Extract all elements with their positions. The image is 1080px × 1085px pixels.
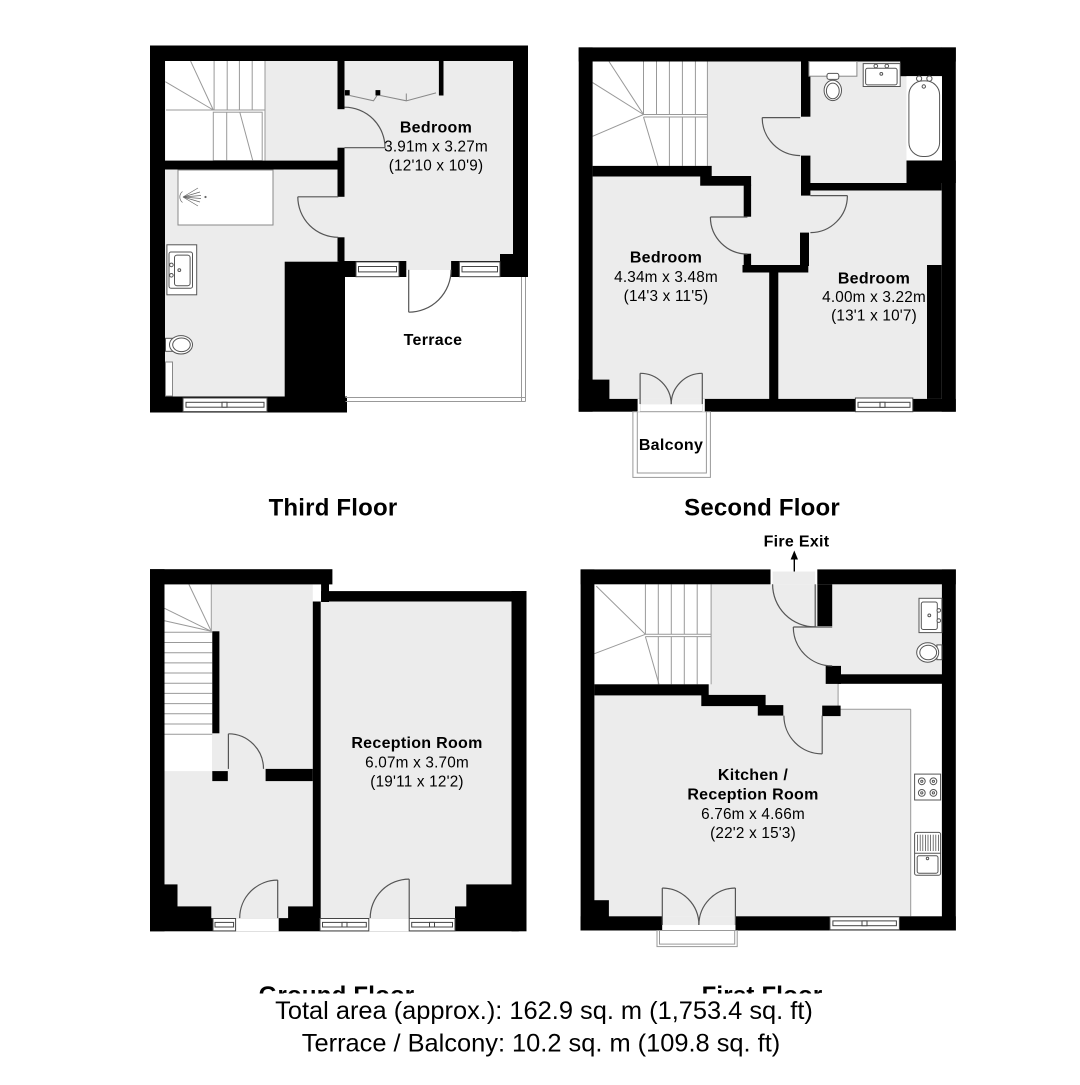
svg-text:Terrace / Balcony: 10.2 sq. m: Terrace / Balcony: 10.2 sq. m (109.8 sq.… bbox=[302, 1030, 780, 1058]
svg-text:Fire Exit: Fire Exit bbox=[764, 534, 830, 551]
svg-text:3.91m x 3.27m: 3.91m x 3.27m bbox=[384, 139, 488, 156]
svg-text:Second Floor: Second Floor bbox=[684, 495, 840, 522]
svg-text:(13'1 x 10'7): (13'1 x 10'7) bbox=[831, 308, 917, 325]
svg-text:Bedroom: Bedroom bbox=[838, 271, 910, 288]
svg-text:(19'11 x 12'2): (19'11 x 12'2) bbox=[370, 774, 463, 791]
svg-text:(12'10 x 10'9): (12'10 x 10'9) bbox=[389, 158, 484, 175]
svg-text:6.07m x 3.70m: 6.07m x 3.70m bbox=[365, 755, 469, 772]
svg-text:Reception Room: Reception Room bbox=[351, 735, 482, 752]
svg-text:Total area (approx.): 162.9 sq: Total area (approx.): 162.9 sq. m (1,753… bbox=[275, 997, 813, 1025]
svg-text:4.00m x 3.22m: 4.00m x 3.22m bbox=[822, 289, 926, 306]
svg-text:Bedroom: Bedroom bbox=[400, 120, 472, 137]
svg-text:Terrace: Terrace bbox=[404, 332, 463, 349]
svg-text:(14'3 x 11'5): (14'3 x 11'5) bbox=[624, 288, 709, 305]
svg-text:Reception Room: Reception Room bbox=[687, 787, 818, 804]
svg-text:4.34m x 3.48m: 4.34m x 3.48m bbox=[614, 269, 718, 286]
svg-text:Kitchen /: Kitchen / bbox=[718, 767, 789, 784]
svg-text:6.76m x 4.66m: 6.76m x 4.66m bbox=[701, 806, 805, 823]
svg-text:Balcony: Balcony bbox=[639, 437, 703, 454]
svg-text:(22'2 x 15'3): (22'2 x 15'3) bbox=[710, 825, 796, 842]
svg-text:Third Floor: Third Floor bbox=[269, 495, 398, 522]
svg-text:Bedroom: Bedroom bbox=[630, 250, 702, 267]
